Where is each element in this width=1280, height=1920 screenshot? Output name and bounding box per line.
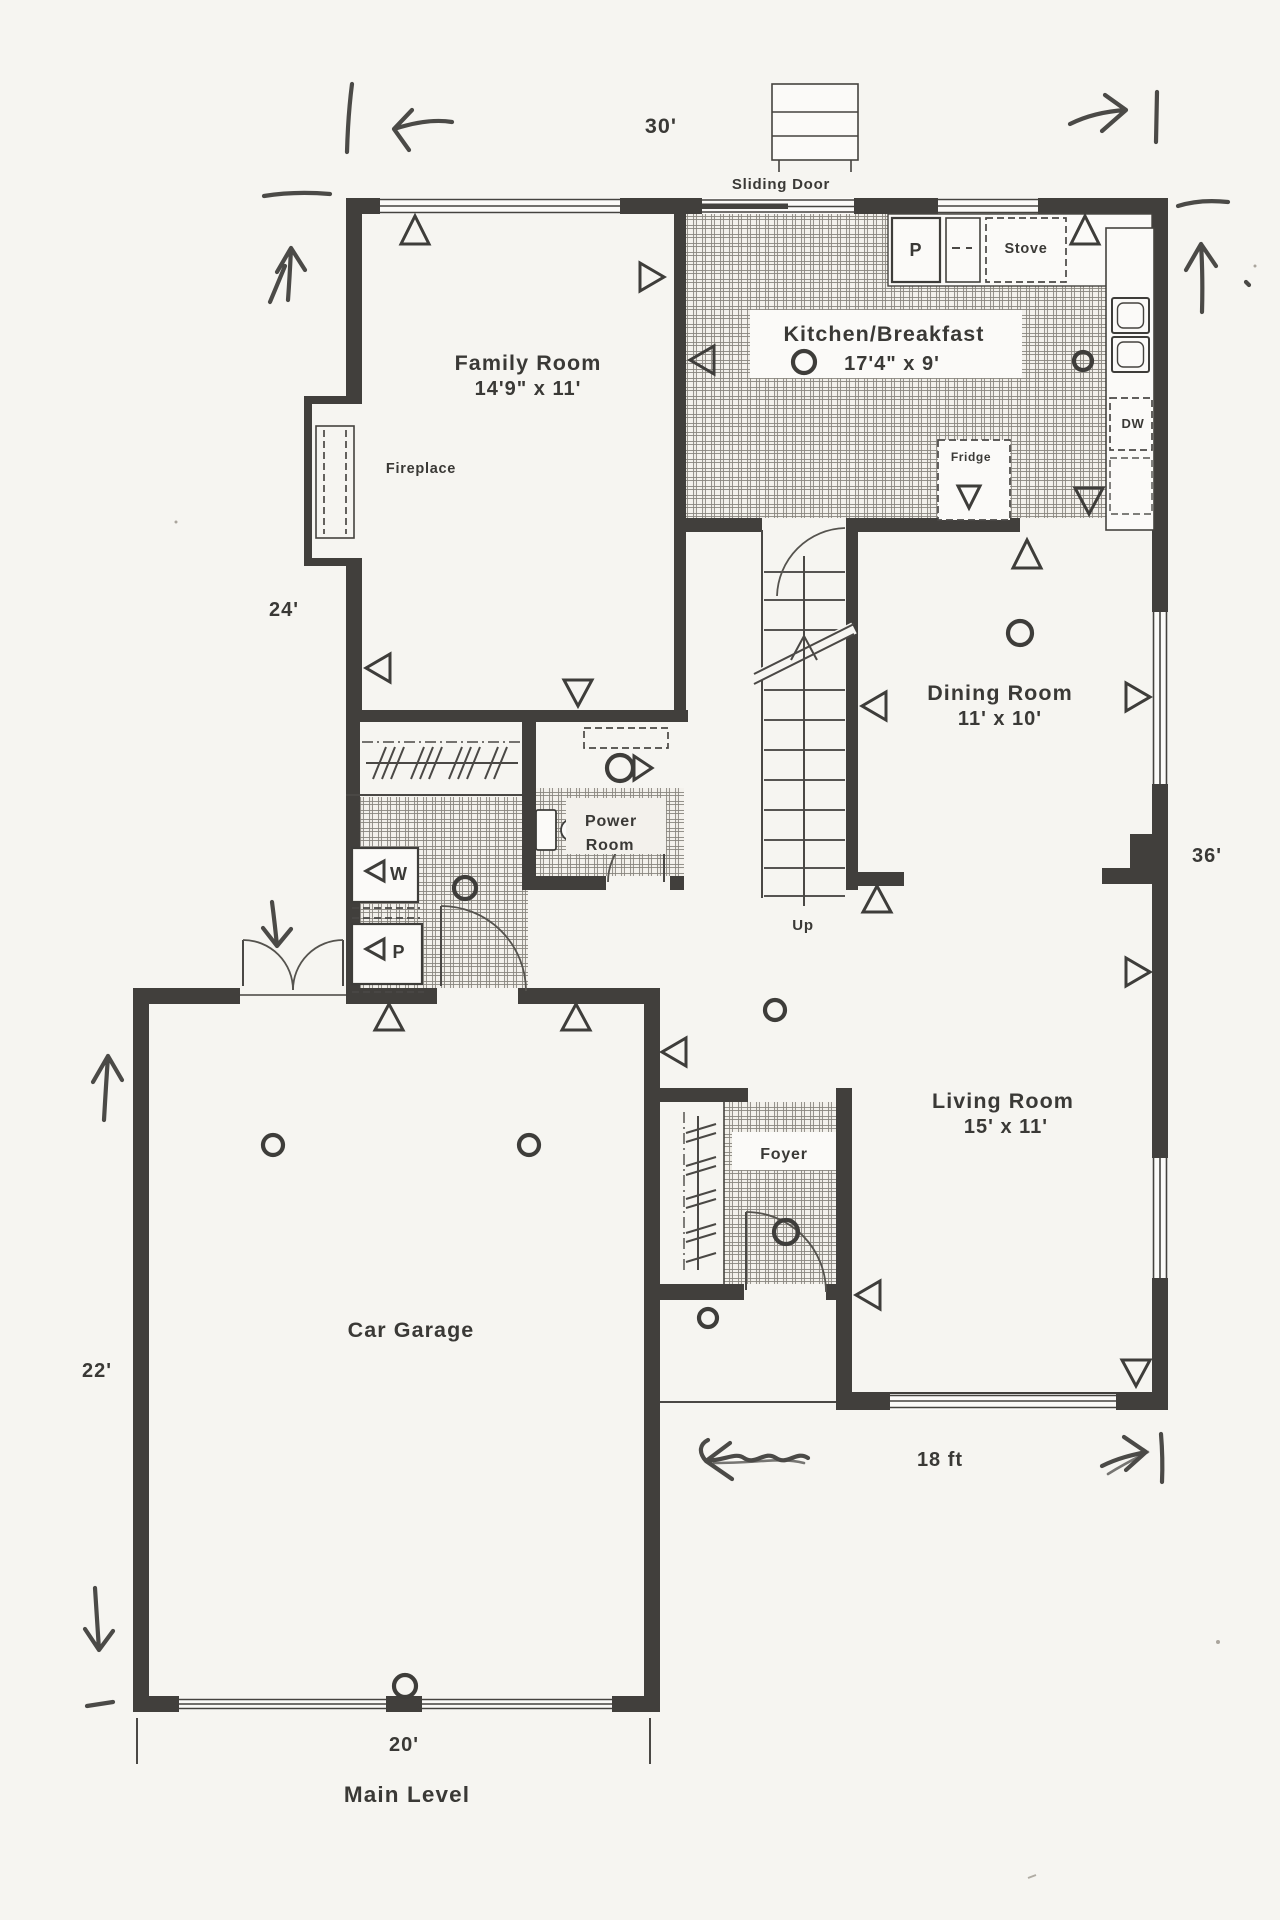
washer-label: W: [390, 864, 408, 884]
pantry-label: P: [910, 240, 923, 260]
sliding-door-panel: [702, 204, 788, 210]
pen-tick-bottom-right: [1161, 1434, 1162, 1482]
wall-foyer-top: [656, 1088, 748, 1102]
dryer-box: [352, 924, 422, 984]
dim-right-height: 36': [1192, 845, 1222, 867]
foyer-closet: [672, 1102, 724, 1284]
fireplace-label: Fireplace: [386, 461, 456, 477]
wall-right-notch: [1102, 868, 1152, 884]
power-room-name-line2: Room: [586, 837, 635, 854]
foyer-label: Foyer: [760, 1146, 808, 1163]
dining-room-name: Dining Room: [927, 681, 1073, 705]
pen-tick-top-right: [1156, 92, 1157, 142]
dining-room-dims: 11' x 10': [958, 708, 1042, 730]
chimney: [772, 84, 858, 172]
garage-door-pier-left: [133, 1696, 179, 1712]
powder-door-opening: [606, 876, 670, 890]
fireplace: [304, 396, 362, 566]
dishwasher-label: DW: [1122, 416, 1145, 431]
power-room-name-line1: Power: [585, 813, 637, 830]
wall-right-notch-step: [1130, 834, 1154, 870]
stove-label: Stove: [1004, 241, 1047, 257]
kitchen-dims: 17'4" x 9': [844, 353, 940, 375]
toilet-tank: [536, 810, 556, 850]
wall-family-kitchen: [674, 214, 686, 722]
dim-top-width: 30': [645, 114, 677, 138]
wall-kitchen-bottom-left: [686, 518, 762, 532]
living-room-name: Living Room: [932, 1089, 1074, 1113]
sliding-door-label: Sliding Door: [732, 176, 830, 193]
wall-stairs-right: [846, 518, 858, 890]
page-title: Main Level: [344, 1782, 470, 1807]
dryer-label: P: [393, 942, 406, 962]
counter-right-run: [1106, 228, 1154, 530]
dim-garage-width: 20': [389, 1734, 419, 1756]
dim-living-width: 18 ft: [917, 1449, 963, 1471]
dim-left-lower: 22': [82, 1360, 112, 1382]
fridge-label: Fridge: [951, 450, 991, 464]
wall-garage-left: [133, 988, 149, 1712]
garage-door-pier-right: [612, 1696, 660, 1712]
hall-garage-door-opening: [437, 988, 518, 1004]
wall-powder-left: [522, 722, 536, 890]
entry-door-opening: [240, 988, 346, 1004]
kitchen-name: Kitchen/Breakfast: [783, 322, 984, 346]
floor-plan-scan: 30' Sliding Door Family Room 14'9" x 11'…: [0, 0, 1280, 1920]
broom-cabinet: [946, 218, 980, 282]
dim-left-upper: 24': [269, 599, 299, 621]
family-room-name: Family Room: [455, 351, 602, 375]
living-room-dims: 15' x 11': [964, 1116, 1048, 1138]
front-door-opening: [744, 1284, 826, 1300]
stairs-up-label: Up: [792, 917, 814, 934]
wall-family-bottom: [346, 710, 688, 722]
wall-garage-top: [133, 988, 660, 1004]
wall-foyer-right: [836, 1088, 852, 1410]
garage-label: Car Garage: [348, 1318, 475, 1342]
wall-stairs-stub: [858, 872, 904, 886]
family-room-dims: 14'9" x 11': [475, 378, 582, 400]
